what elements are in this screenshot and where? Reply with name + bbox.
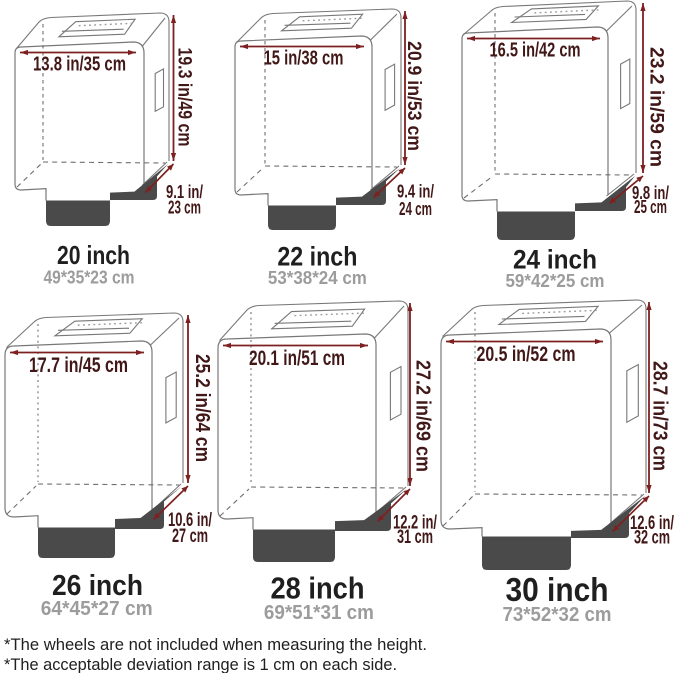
svg-text:22 inch: 22 inch bbox=[277, 242, 357, 272]
svg-text:24 cm: 24 cm bbox=[399, 199, 432, 219]
svg-text:19.3 in/49 cm: 19.3 in/49 cm bbox=[174, 48, 195, 147]
svg-text:23 cm: 23 cm bbox=[168, 198, 201, 218]
svg-text:59*42*25 cm: 59*42*25 cm bbox=[506, 271, 605, 291]
svg-text:28.7 in/73 cm: 28.7 in/73 cm bbox=[649, 361, 671, 471]
svg-text:27 cm: 27 cm bbox=[172, 526, 208, 547]
svg-text:20 inch: 20 inch bbox=[57, 240, 130, 270]
svg-text:15 in/38 cm: 15 in/38 cm bbox=[264, 48, 344, 70]
svg-text:23.2 in/59 cm: 23.2 in/59 cm bbox=[646, 47, 667, 167]
svg-text:20.5 in/52 cm: 20.5 in/52 cm bbox=[477, 343, 576, 366]
svg-text:30 inch: 30 inch bbox=[506, 571, 609, 608]
svg-text:69*51*31 cm: 69*51*31 cm bbox=[264, 602, 374, 624]
svg-text:16.5 in/42 cm: 16.5 in/42 cm bbox=[490, 40, 581, 62]
svg-text:49*35*23 cm: 49*35*23 cm bbox=[44, 268, 135, 288]
svg-text:24 inch: 24 inch bbox=[513, 245, 597, 275]
svg-text:20.1 in/51 cm: 20.1 in/51 cm bbox=[249, 347, 345, 370]
svg-text:*The acceptable deviation rang: *The acceptable deviation range is 1 cm … bbox=[4, 656, 397, 673]
svg-text:31 cm: 31 cm bbox=[397, 527, 433, 548]
svg-text:13.8 in/35 cm: 13.8 in/35 cm bbox=[33, 54, 126, 76]
svg-text:73*52*32 cm: 73*52*32 cm bbox=[503, 604, 612, 626]
svg-text:53*38*24 cm: 53*38*24 cm bbox=[268, 268, 367, 288]
svg-text:27.2 in/69 cm: 27.2 in/69 cm bbox=[412, 360, 434, 472]
svg-text:*The wheels are not included w: *The wheels are not included when measur… bbox=[4, 636, 427, 654]
svg-text:28 inch: 28 inch bbox=[271, 571, 365, 606]
svg-text:32 cm: 32 cm bbox=[634, 528, 670, 549]
svg-text:20.9 in/53 cm: 20.9 in/53 cm bbox=[403, 41, 424, 151]
svg-text:64*45*27 cm: 64*45*27 cm bbox=[41, 598, 153, 620]
svg-text:25.2 in/64 cm: 25.2 in/64 cm bbox=[191, 354, 213, 462]
svg-text:17.7 in/45 cm: 17.7 in/45 cm bbox=[29, 354, 128, 377]
svg-text:25 cm: 25 cm bbox=[634, 197, 667, 217]
